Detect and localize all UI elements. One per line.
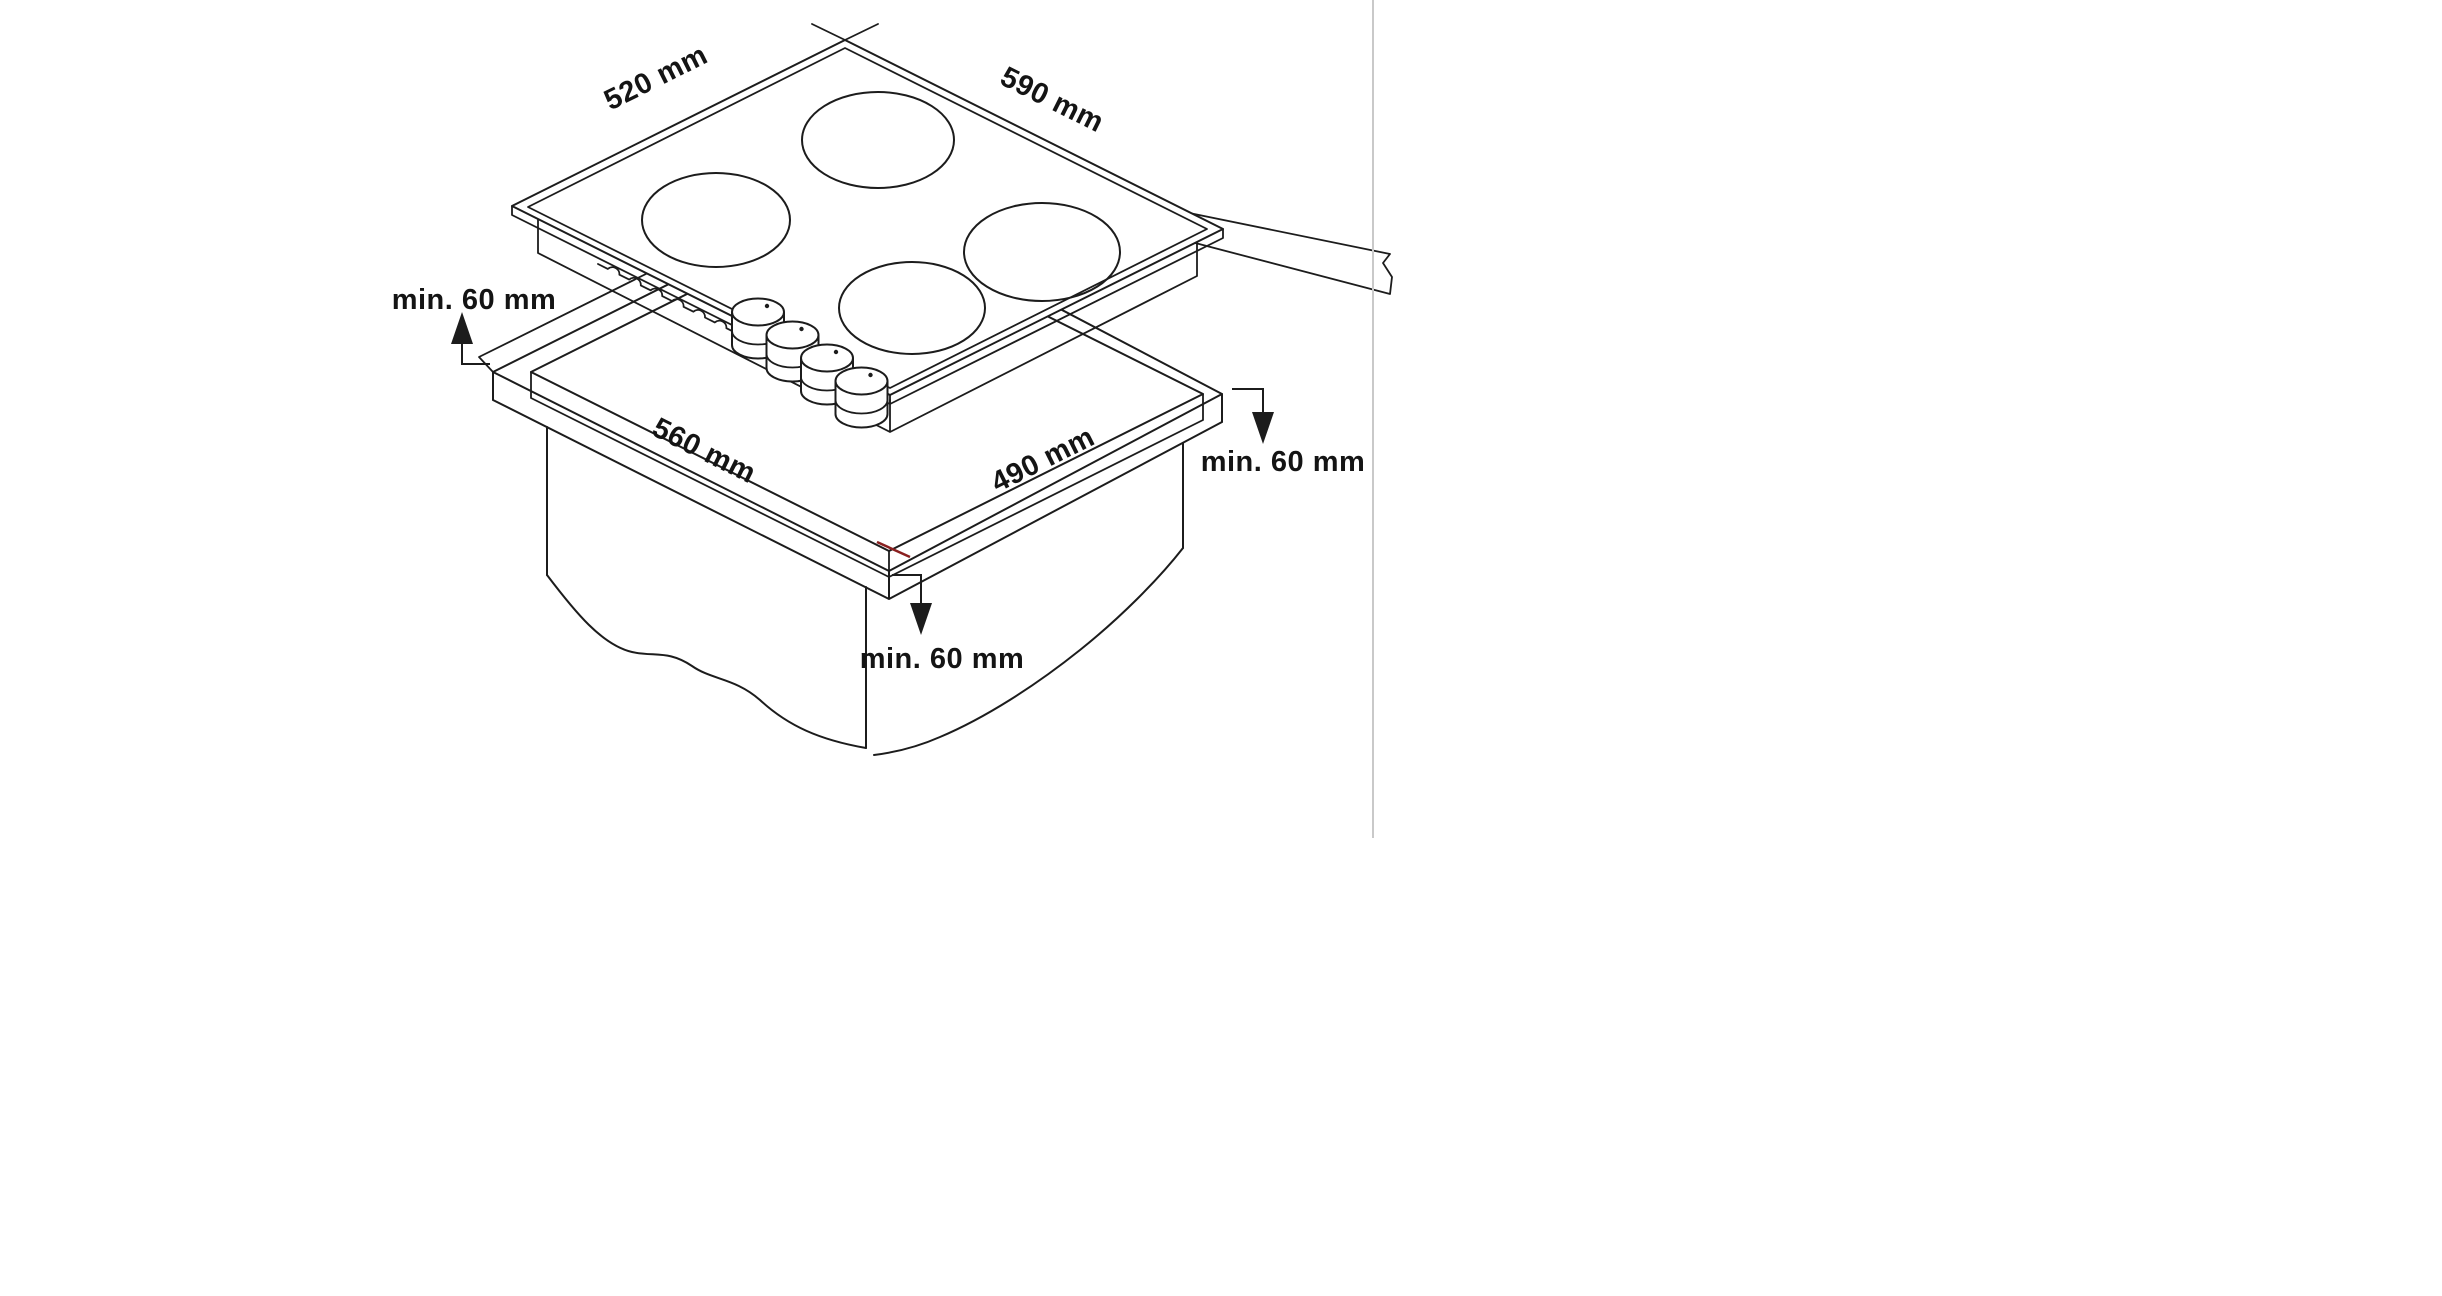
countertop-cut-left — [479, 267, 660, 372]
hob-corner-overshoot — [812, 24, 878, 40]
label-hob-depth: 520 mm — [599, 39, 713, 117]
installation-diagram: 520 mm 590 mm 560 mm 490 mm min. 60 mm m… — [0, 0, 2442, 1296]
arrow-up-icon — [451, 312, 473, 344]
clearance-front-callout — [892, 575, 932, 635]
clearance-left-callout — [451, 312, 490, 364]
label-clearance-left: min. 60 mm — [392, 284, 557, 316]
arrow-down-icon — [1252, 412, 1274, 444]
cut-mark-tick — [877, 542, 910, 557]
label-clearance-front: min. 60 mm — [860, 643, 1025, 675]
control-knob — [836, 368, 888, 428]
clearance-right-callout — [1232, 389, 1274, 444]
cabinet — [547, 427, 1183, 755]
label-clearance-right: min. 60 mm — [1201, 446, 1366, 478]
manual-page: 520 mm 590 mm 560 mm 490 mm min. 60 mm m… — [0, 0, 2442, 1296]
label-cutout-depth: 490 mm — [986, 421, 1100, 499]
arrow-down-icon — [910, 603, 932, 635]
leader-line — [1232, 389, 1263, 414]
cabinet-torn-bottom-edge — [547, 575, 866, 748]
